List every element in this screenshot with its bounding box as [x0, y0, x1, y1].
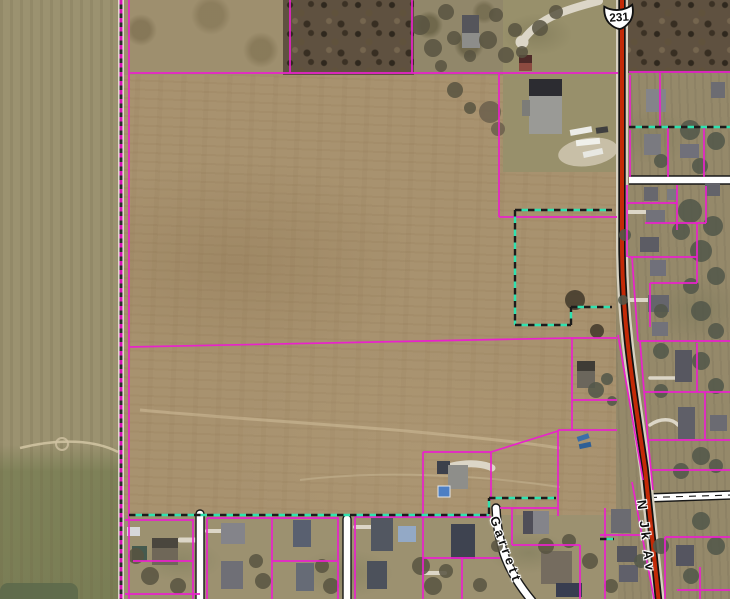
- driveways: [180, 1, 678, 573]
- field-track-marks: [20, 410, 560, 487]
- us-route-shield-icon: 231: [600, 1, 638, 31]
- city-boundary-lines: [129, 127, 730, 539]
- map-features: [0, 0, 730, 599]
- route-shield-number: 231: [609, 10, 630, 24]
- map-viewport[interactable]: 231 N Jk Av Garrett: [0, 0, 730, 599]
- east-road-lower: [646, 495, 730, 498]
